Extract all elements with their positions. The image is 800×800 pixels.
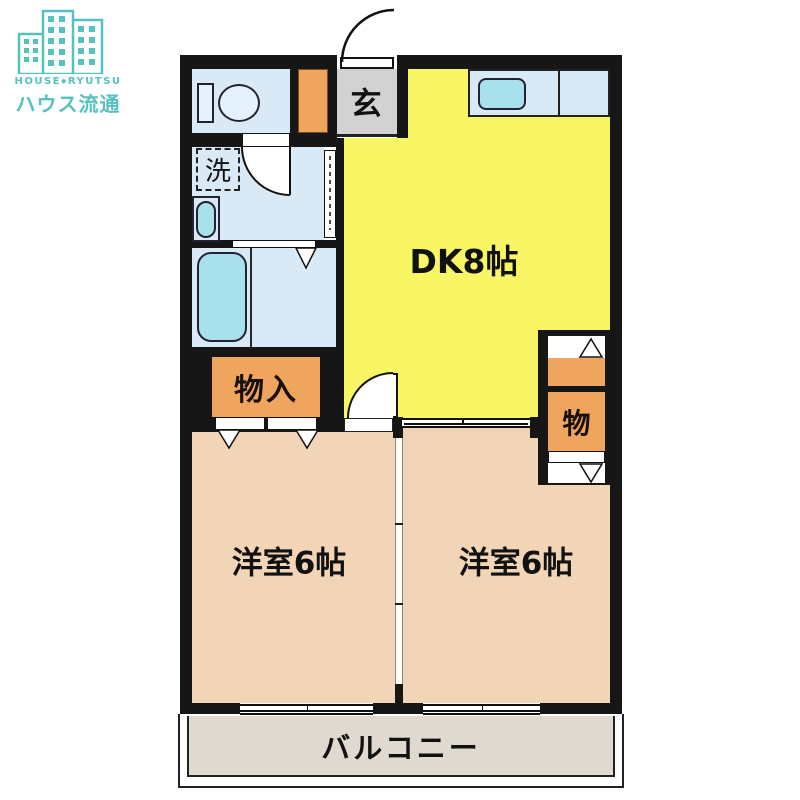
storage-lower: 物	[548, 392, 605, 451]
toilet-tank-icon	[197, 83, 214, 123]
wall	[290, 69, 298, 133]
closet-folding-door	[267, 417, 317, 430]
logo-buildings-icon	[12, 8, 124, 74]
storage-door-strip	[548, 451, 605, 463]
kitchen-sink-icon	[478, 78, 526, 110]
sliding-door-tick	[462, 420, 464, 425]
bathtub-edge-line	[250, 248, 252, 347]
bedroom-right-label: 洋室6帖	[459, 538, 574, 583]
balcony-window-left	[240, 704, 373, 715]
wall	[610, 55, 622, 716]
sliding-door-line	[404, 423, 528, 425]
window-tick	[482, 706, 484, 711]
storage-upper	[548, 358, 605, 386]
entrance-door-arc	[342, 10, 394, 62]
dk-bedroom-sliding-door	[402, 418, 530, 428]
dk-label: DK8帖	[410, 235, 519, 283]
agency-logo: HOUSE◆RYUTSU ハウス流通	[12, 8, 128, 120]
dk-bedroom-door-opening	[344, 418, 393, 432]
wall	[397, 55, 622, 69]
bedroom-partition-sliding	[395, 438, 403, 684]
closet-folding-door	[215, 417, 265, 430]
laundry-label: 洗	[205, 151, 231, 188]
toilet-door-opening	[242, 133, 290, 147]
vanity-sink-icon	[196, 201, 216, 238]
wall	[336, 138, 344, 360]
balcony-label: バルコニー	[321, 725, 480, 767]
wall	[316, 240, 344, 248]
entrance-step-line	[337, 134, 397, 137]
wall	[180, 133, 242, 147]
wall	[397, 55, 408, 138]
entrance-label: 玄	[351, 79, 382, 124]
partition-tick	[395, 523, 403, 525]
wall	[290, 133, 337, 147]
bedroom-left-label: 洋室6帖	[232, 538, 347, 583]
balcony-window-right	[423, 704, 540, 715]
floor-plan-page: HOUSE◆RYUTSU ハウス流通 バルコニー 洗	[0, 0, 800, 800]
washing-machine-icon: 洗	[196, 148, 240, 191]
shoe-cabinet	[298, 69, 328, 133]
logo-romaji: HOUSE◆RYUTSU	[12, 76, 124, 87]
washroom-sliding-door	[324, 150, 336, 238]
closet-label: 物入	[234, 365, 298, 409]
bathtub-icon	[197, 252, 247, 342]
dk-bedroom-door-leaf	[388, 373, 398, 418]
kitchen-counter-divider	[558, 69, 560, 117]
logo-separator-icon: ◆	[61, 77, 68, 85]
wall	[395, 682, 403, 704]
storage-label: 物	[562, 402, 590, 442]
window-tick	[307, 706, 309, 711]
storage-door-upper	[548, 336, 605, 358]
balcony: バルコニー	[187, 716, 615, 777]
closet-monoire: 物入	[212, 357, 320, 417]
entrance-door-leaf	[340, 57, 394, 69]
bath-folding-door	[232, 240, 316, 248]
wall	[328, 69, 337, 138]
toilet-bowl-icon	[218, 84, 260, 122]
logo-name-jp: ハウス流通	[12, 88, 124, 117]
partition-tick	[395, 603, 403, 605]
wall	[180, 55, 337, 69]
